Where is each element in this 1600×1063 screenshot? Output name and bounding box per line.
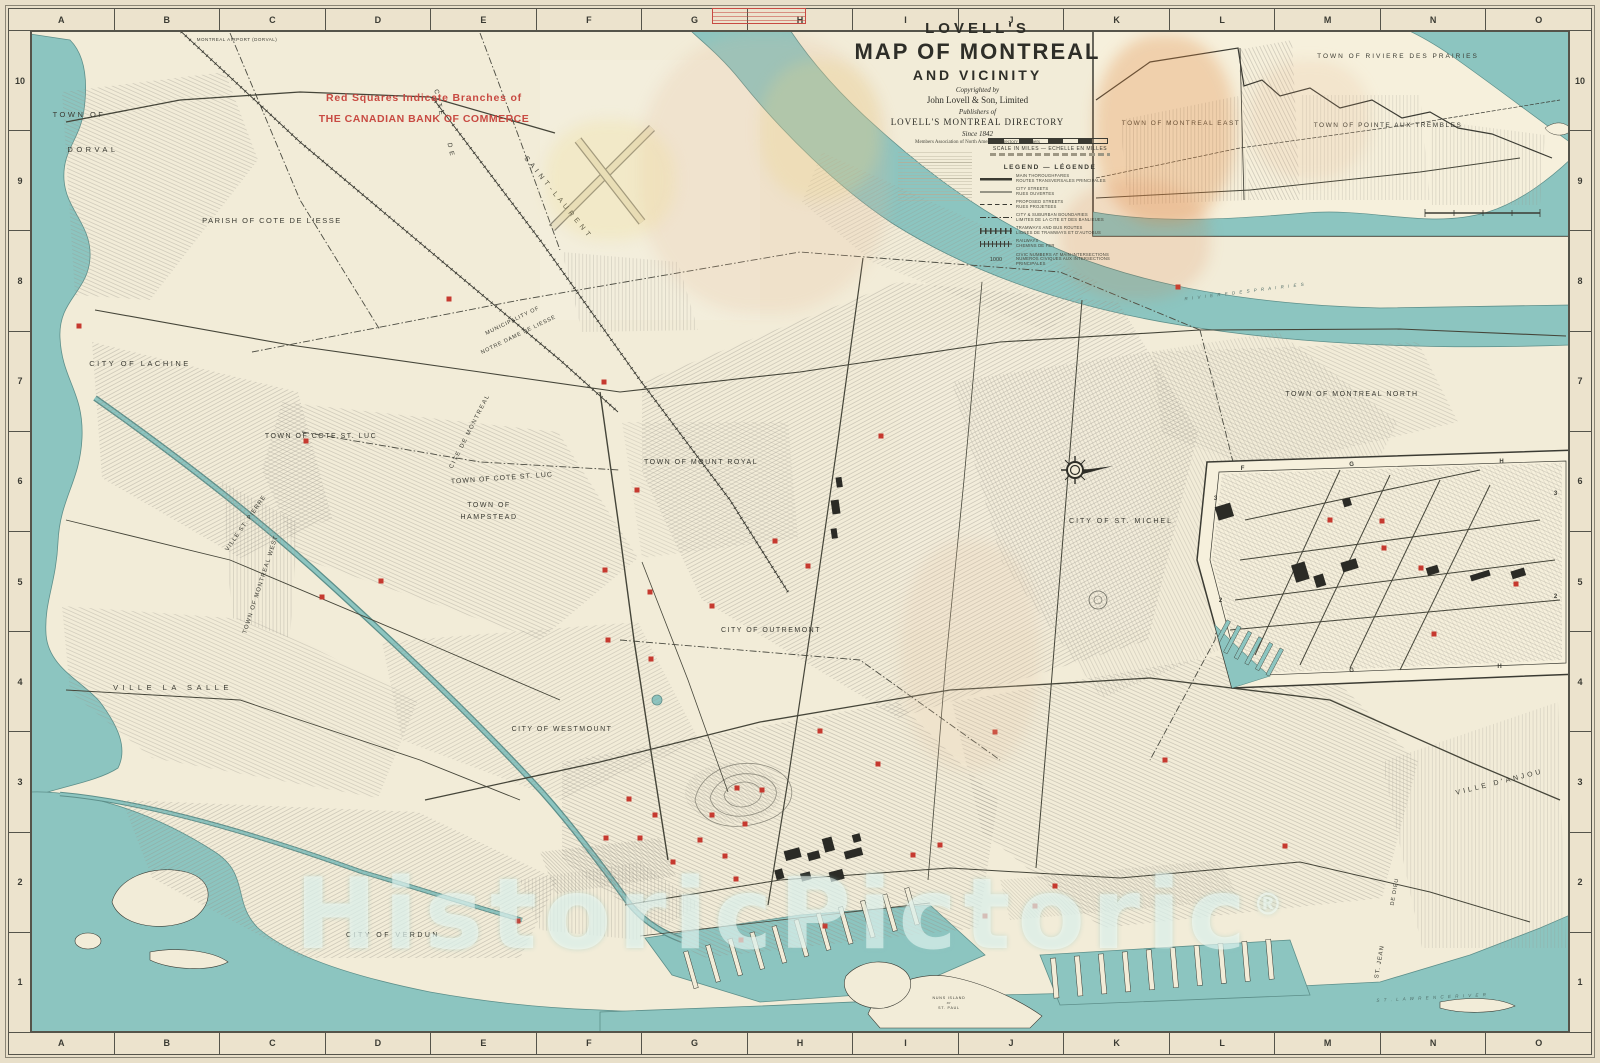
legend-entry: CITY & SUBURBAN BOUNDARIESLIMITES DE LA … (980, 213, 1120, 223)
legend-symbol-thin (980, 189, 1012, 195)
grid-letter: L (1169, 9, 1275, 31)
bank-branch-square (648, 590, 653, 595)
index-marker-box (712, 8, 806, 24)
bank-branch-square (77, 324, 82, 329)
title-vicinity: AND VICINITY (845, 67, 1110, 83)
grid-number: 4 (9, 631, 31, 731)
map-label: 3 (1554, 491, 1558, 497)
grid-letter: F (536, 1032, 642, 1054)
map-label: CITY OF OUTREMONT (721, 627, 821, 634)
grid-number: 1 (9, 932, 31, 1032)
map-label: CITY OF WESTMOUNT (512, 726, 613, 733)
grid-letter: D (325, 1032, 431, 1054)
bank-branch-square (876, 762, 881, 767)
grid-number: 7 (9, 331, 31, 431)
map-svg: MONTREAL AIRPORT (DORVAL)TOWN OFDORVALPA… (30, 30, 1570, 1033)
bank-branch-square (603, 568, 608, 573)
legend-symbol-rail (980, 241, 1012, 247)
bank-branch-square (516, 919, 521, 924)
fine-print (898, 150, 972, 204)
legend-entry: TRAMWAYS AND BUS ROUTESLIGNES DE TRAMWAY… (980, 226, 1120, 236)
map-label: NUNS ISLAND (933, 996, 966, 1000)
grid-letter: M (1274, 9, 1380, 31)
bank-branch-square (806, 564, 811, 569)
grid-letter: A (9, 1032, 114, 1054)
grid-letter: O (1485, 1032, 1591, 1054)
map-label: F (1241, 466, 1245, 472)
map-label: HAMPSTEAD (460, 514, 517, 521)
map-label: TOWN OF COTE ST. LUC (265, 433, 377, 440)
grid-number: 8 (9, 230, 31, 330)
bank-branch-square (1328, 518, 1333, 523)
legend-entry: PROPOSED STREETSRUES PROJETEES (980, 200, 1120, 210)
grid-number: 6 (9, 431, 31, 531)
grid-number: 9 (1569, 130, 1591, 230)
scale-label: SCALE IN MILES — ECHELLE EN MILLES (980, 146, 1120, 152)
map-label: DORVAL (67, 145, 118, 154)
bank-branch-square (773, 539, 778, 544)
bank-branch-square (606, 638, 611, 643)
grid-letter: E (430, 1032, 536, 1054)
grid-number: 2 (9, 832, 31, 932)
bank-branch-square (1283, 844, 1288, 849)
grid-number: 10 (9, 31, 31, 130)
map-label: TOWN OF MONTREAL NORTH (1285, 391, 1418, 398)
grid-letter: F (536, 9, 642, 31)
grid-letter: C (219, 9, 325, 31)
inset-riviere-des-prairies (1093, 30, 1570, 236)
title-directory: LOVELL'S MONTREAL DIRECTORY (845, 117, 1110, 127)
bank-branch-square (983, 914, 988, 919)
grid-letter: L (1169, 1032, 1275, 1054)
bank-branch-square (723, 854, 728, 859)
legend-entry: RAILWAYSCHEMINS DE FER (980, 239, 1120, 249)
bank-branch-square (649, 657, 654, 662)
bank-branch-square (1382, 546, 1387, 551)
bank-branch-square (320, 595, 325, 600)
map-label: TOWN OF MONTREAL EAST (1122, 120, 1241, 127)
legend-entries: MAIN THOROUGHFARESROUTES TRANSVERSALES P… (980, 174, 1120, 267)
bank-branch-square (698, 838, 703, 843)
map-label: 2 (1219, 598, 1223, 604)
legend-symbol-thick (980, 176, 1012, 182)
bank-branch-square (447, 297, 452, 302)
bank-branch-square (638, 836, 643, 841)
legend-entry: CITY STREETSRUES OUVERTES (980, 187, 1120, 197)
bank-branch-square (1163, 758, 1168, 763)
grid-letter: B (114, 9, 220, 31)
map-label: ST. PAUL (938, 1006, 960, 1010)
bank-branch-square (760, 788, 765, 793)
grid-letter: N (1380, 9, 1486, 31)
map-label: TOWN OF POINTE AUX TREMBLES (1314, 122, 1463, 129)
bank-branch-square (993, 730, 998, 735)
grid-number: 3 (9, 731, 31, 831)
map-label: TOWN OF RIVIERE DES PRAIRIES (1317, 53, 1479, 60)
grid-letter: G (641, 1032, 747, 1054)
grid-letter: K (1063, 1032, 1169, 1054)
bank-branch-square (1432, 632, 1437, 637)
legend-symbol-dashed (980, 204, 1012, 205)
scale-bar (988, 138, 1108, 144)
grid-number: 3 (1569, 731, 1591, 831)
map-label: TOWN OF MOUNT ROYAL (644, 459, 758, 466)
map-label: TOWN OF (53, 110, 106, 119)
grid-number: 5 (9, 531, 31, 631)
map-label: H (1497, 664, 1502, 670)
inset-downtown (1197, 426, 1570, 688)
map-label: Red Squares Indicate Branches of (326, 92, 522, 104)
grid-letter: A (9, 9, 114, 31)
map-label: G (1349, 668, 1354, 674)
map-label: H (1499, 459, 1504, 465)
legend-symbol-tram (980, 228, 1012, 234)
bank-branch-square (604, 836, 609, 841)
grid-letter: I (852, 1032, 958, 1054)
map-label: G (1349, 462, 1354, 468)
grid-number: 6 (1569, 431, 1591, 531)
legend-entry-label: RAILWAYSCHEMINS DE FER (1016, 239, 1055, 249)
bank-branch-square (1419, 566, 1424, 571)
grid-number: 1 (1569, 932, 1591, 1032)
title-copyrighted: Copyrighted by (845, 86, 1110, 94)
legend-entry-label: CITY & SUBURBAN BOUNDARIESLIMITES DE LA … (1016, 213, 1104, 223)
grid-letter: C (219, 1032, 325, 1054)
bank-branch-square (1033, 904, 1038, 909)
map-label: CITY OF LACHINE (89, 359, 191, 368)
right-numbers: 10987654321 (1568, 30, 1592, 1033)
grid-letter: E (430, 9, 536, 31)
left-numbers: 10987654321 (8, 30, 32, 1033)
grid-letter: N (1380, 1032, 1486, 1054)
grid-letter: M (1274, 1032, 1380, 1054)
grid-number: 9 (9, 130, 31, 230)
legend-entry-label: CIVIC NUMBERS AT MAIN INTERSECTIONSNUMER… (1016, 253, 1120, 267)
page-title: MAP OF MONTREAL (845, 39, 1110, 65)
map-label: CITY OF ST. MICHEL (1069, 518, 1173, 525)
scale-note (990, 153, 1110, 156)
map-sheet: { "colors":{"paper":"#e8dfc9","land":"#f… (0, 0, 1600, 1063)
title-block: LOVELL'S MAP OF MONTREAL AND VICINITY Co… (845, 20, 1110, 145)
title-publisher: John Lovell & Son, Limited (845, 95, 1110, 105)
bank-branch-square (1053, 884, 1058, 889)
bank-branch-square (1176, 285, 1181, 290)
map-label: 3 (1214, 496, 1218, 502)
legend-entry-label: MAIN THOROUGHFARESROUTES TRANSVERSALES P… (1016, 174, 1106, 184)
title-lovells: LOVELL'S (845, 20, 1110, 37)
bank-branch-square (735, 786, 740, 791)
map-label: MONTREAL AIRPORT (DORVAL) (197, 37, 278, 42)
bank-branch-square (1514, 582, 1519, 587)
bank-branch-square (823, 924, 828, 929)
grid-number: 4 (1569, 631, 1591, 731)
legend-entry: 1000CIVIC NUMBERS AT MAIN INTERSECTIONSN… (980, 253, 1120, 267)
grid-number: 2 (1569, 832, 1591, 932)
bank-branch-square (734, 877, 739, 882)
grid-letter: O (1485, 9, 1591, 31)
bank-branch-square (602, 380, 607, 385)
grid-letter: D (325, 9, 431, 31)
bank-branch-square (671, 860, 676, 865)
grid-letter: B (114, 1032, 220, 1054)
title-since: Since 1842 (845, 130, 1110, 138)
bank-branch-square (379, 579, 384, 584)
grid-letter: J (958, 1032, 1064, 1054)
map-label: or (947, 1001, 952, 1005)
legend: SCALE IN MILES — ECHELLE EN MILLES LEGEN… (980, 138, 1120, 267)
map-label: CITY OF VERDUN (346, 932, 440, 939)
grid-number: 8 (1569, 230, 1591, 330)
bank-branch-square (653, 813, 658, 818)
title-publishers-of: Publishers of (845, 108, 1110, 116)
grid-letter: H (747, 1032, 853, 1054)
map-label: VILLE LA SALLE (113, 683, 233, 692)
map-label: TOWN OF (467, 502, 510, 509)
bank-branch-square (1380, 519, 1385, 524)
legend-entry-label: PROPOSED STREETSRUES PROJETEES (1016, 200, 1063, 210)
bank-branch-square (879, 434, 884, 439)
bank-branch-square (710, 813, 715, 818)
legend-entry: MAIN THOROUGHFARESROUTES TRANSVERSALES P… (980, 174, 1120, 184)
map-label: PARISH OF COTE DE LIESSE (202, 216, 342, 225)
bottom-letters: ABCDEFGHIJKLMNO (8, 1031, 1592, 1055)
bank-branch-square (818, 729, 823, 734)
bank-branch-square (911, 853, 916, 858)
legend-symbol-dashdot (980, 217, 1012, 218)
map-label: 2 (1554, 594, 1558, 600)
map-label: THE CANADIAN BANK OF COMMERCE (319, 113, 530, 125)
bank-branch-square (710, 604, 715, 609)
bank-branch-square (739, 938, 744, 943)
legend-symbol-number: 1000 (980, 257, 1012, 263)
legend-entry-label: TRAMWAYS AND BUS ROUTESLIGNES DE TRAMWAY… (1016, 226, 1101, 236)
bank-branch-square (635, 488, 640, 493)
bank-branch-square (743, 822, 748, 827)
legend-title: LEGEND — LÉGENDE (980, 164, 1120, 171)
bank-branch-square (627, 797, 632, 802)
grid-number: 7 (1569, 331, 1591, 431)
legend-entry-label: CITY STREETSRUES OUVERTES (1016, 187, 1054, 197)
grid-number: 5 (1569, 531, 1591, 631)
bank-branch-square (938, 843, 943, 848)
grid-number: 10 (1569, 31, 1591, 130)
